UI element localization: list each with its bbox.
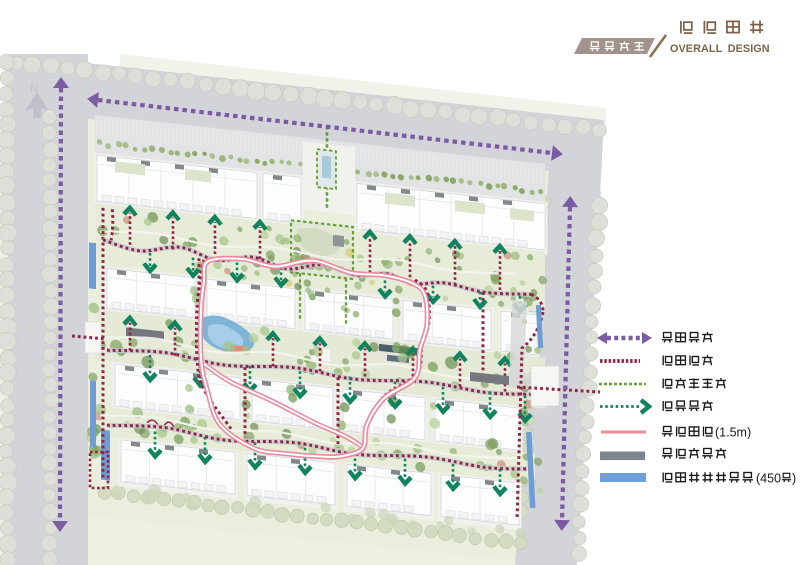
svg-text:(1.5m): (1.5m) bbox=[715, 426, 751, 440]
svg-text:OVERALL DESIGN: OVERALL DESIGN bbox=[670, 43, 770, 55]
svg-text:): ) bbox=[792, 472, 796, 486]
svg-text:(450: (450 bbox=[756, 472, 781, 486]
